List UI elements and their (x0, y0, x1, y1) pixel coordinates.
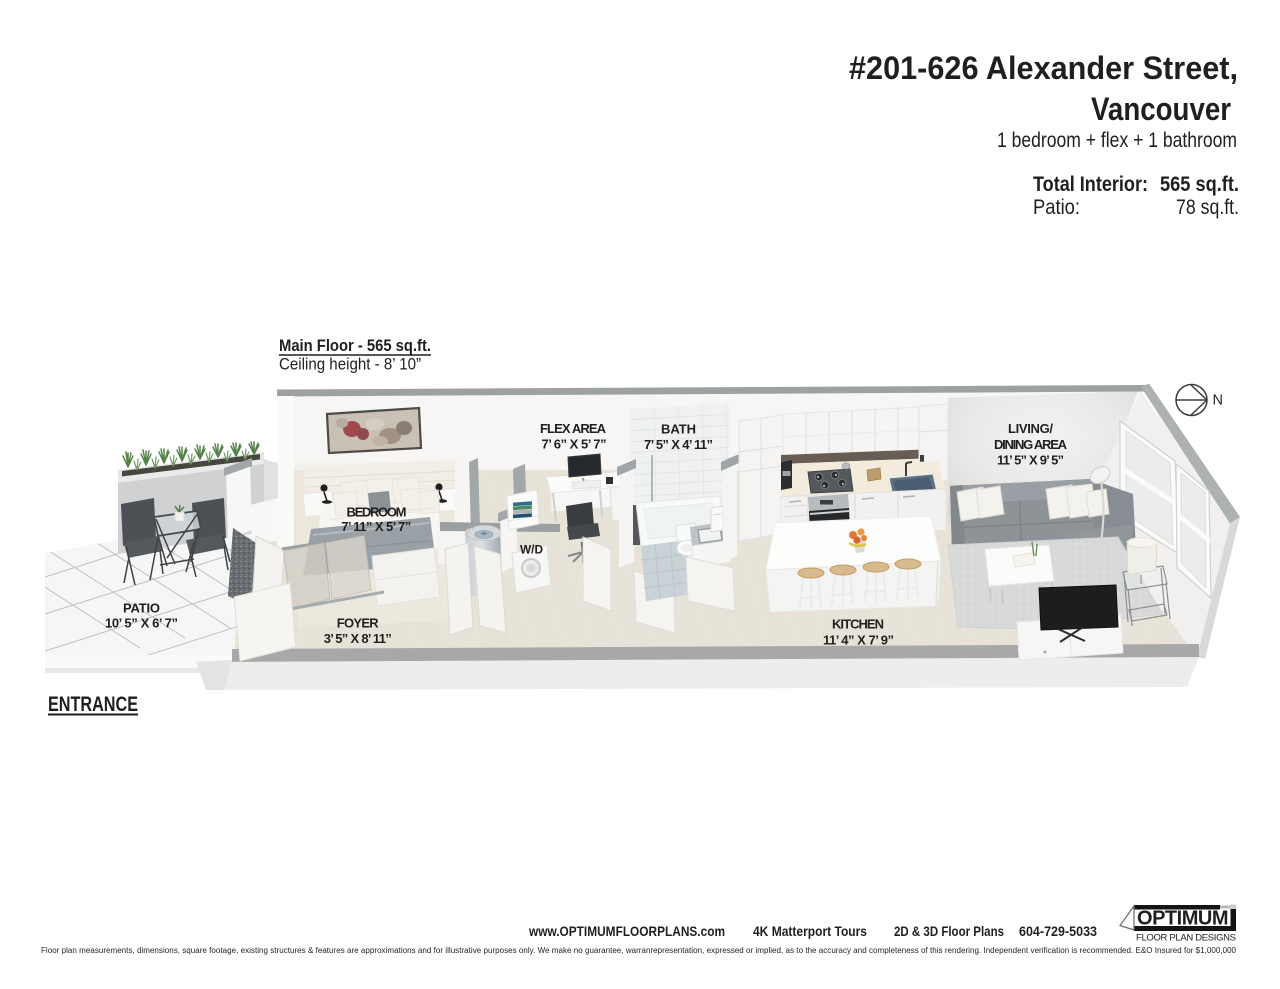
svg-text:Vancouver: Vancouver (1091, 91, 1231, 127)
svg-text:565 sq.ft.: 565 sq.ft. (1160, 173, 1239, 196)
svg-text:7’ 11” X 5’ 7”: 7’ 11” X 5’ 7” (341, 519, 411, 534)
svg-text:Main Floor - 565 sq.ft.: Main Floor - 565 sq.ft. (279, 336, 431, 355)
svg-text:FOYER: FOYER (337, 616, 380, 631)
svg-text:11’ 5” X 9’ 5”: 11’ 5” X 9’ 5” (997, 452, 1064, 467)
svg-text:1 bedroom + flex + 1 bathroom: 1 bedroom + flex + 1 bathroom (997, 129, 1237, 152)
svg-text:W/D: W/D (520, 543, 543, 557)
svg-text:BATH: BATH (661, 422, 696, 437)
svg-text:N: N (1213, 393, 1223, 409)
svg-text:2D & 3D Floor Plans: 2D & 3D Floor Plans (894, 923, 1004, 939)
svg-text:LIVING/: LIVING/ (1008, 421, 1053, 436)
svg-text:3’ 5” X 8’ 11”: 3’ 5” X 8’ 11” (324, 631, 392, 646)
svg-text:7’ 6” X 5’ 7”: 7’ 6” X 5’ 7” (542, 437, 607, 452)
svg-text:#201-626 Alexander Street,: #201-626 Alexander Street, (849, 50, 1238, 86)
svg-text:11’ 4” X 7’ 9”: 11’ 4” X 7’ 9” (823, 633, 894, 648)
svg-text:10’ 5” X 6’ 7”: 10’ 5” X 6’ 7” (105, 616, 178, 631)
svg-text:PATIO: PATIO (123, 601, 160, 616)
svg-text:www.OPTIMUMFLOORPLANS.com: www.OPTIMUMFLOORPLANS.com (528, 923, 725, 939)
svg-text:4K Matterport Tours: 4K Matterport Tours (753, 923, 867, 939)
svg-text:DINING AREA: DINING AREA (994, 437, 1068, 452)
svg-text:7’ 5” X 4’ 11”: 7’ 5” X 4’ 11” (644, 437, 713, 452)
svg-text:OPTIMUM: OPTIMUM (1137, 908, 1229, 930)
svg-text:KITCHEN: KITCHEN (832, 617, 884, 632)
svg-text:FLEX AREA: FLEX AREA (540, 421, 607, 436)
svg-text:Ceiling height - 8’ 10”: Ceiling height - 8’ 10” (279, 355, 421, 374)
svg-text:BEDROOM: BEDROOM (347, 505, 407, 520)
svg-text:Floor plan measurements, dimen: Floor plan measurements, dimensions, squ… (41, 946, 1237, 955)
svg-text:Patio:: Patio: (1033, 196, 1080, 219)
svg-text:FLOOR PLAN DESIGNS: FLOOR PLAN DESIGNS (1136, 933, 1236, 944)
svg-text:ENTRANCE: ENTRANCE (48, 692, 138, 716)
svg-text:Total Interior:: Total Interior: (1033, 173, 1148, 196)
svg-text:78 sq.ft.: 78 sq.ft. (1176, 196, 1239, 219)
svg-text:604-729-5033: 604-729-5033 (1019, 923, 1097, 939)
